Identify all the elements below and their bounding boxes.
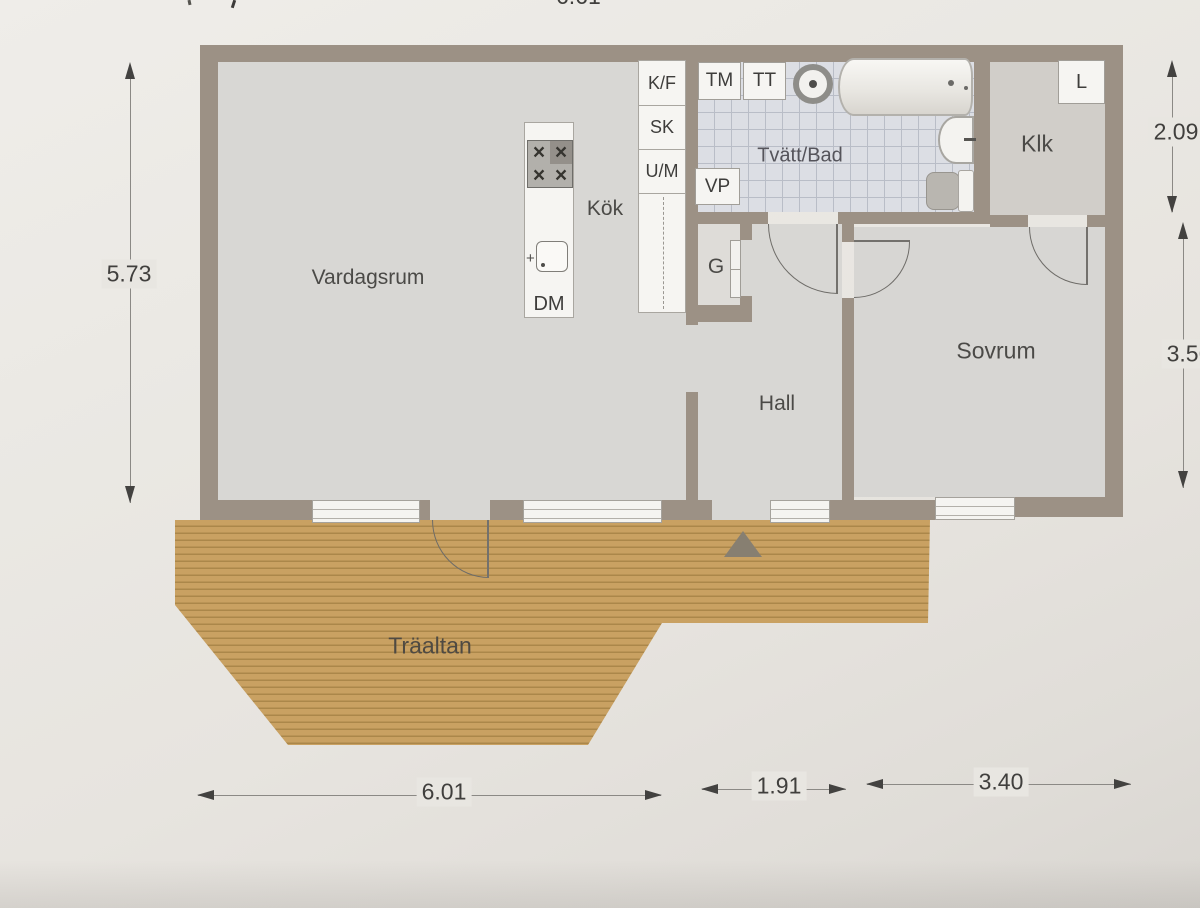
window-sovrum	[935, 497, 1015, 520]
burner-icon: ×	[550, 164, 572, 187]
dimension-label-right-lower: 3.56	[1162, 340, 1200, 369]
entrance-arrow-icon	[724, 531, 762, 557]
wall-bottom-seg3	[490, 500, 523, 520]
room-label-klk: Klk	[1021, 131, 1053, 158]
garderob-door	[730, 240, 741, 298]
wall-klk-bottom-left	[990, 215, 1028, 227]
kitchen-sink	[536, 241, 568, 272]
window-vardagsrum-2	[523, 500, 662, 523]
kitchen-tall-cabinets: K/F SK U/M	[638, 60, 686, 313]
dimension-top-text: 6.61	[556, 0, 601, 7]
toilet-seat	[926, 172, 960, 210]
dimension-label-bottom-right: 3.40	[974, 768, 1029, 797]
linen-closet: L	[1058, 60, 1105, 104]
entrance-opening	[712, 500, 770, 520]
sink-tap-icon: +	[526, 250, 535, 267]
room-label-vardagsrum: Vardagsrum	[312, 266, 425, 290]
wood-deck	[175, 520, 932, 748]
dimension-arrow-right	[829, 784, 846, 794]
wall-garderob-bottom	[686, 305, 752, 322]
dimension-label-left: 5.73	[102, 260, 157, 289]
window-hall	[770, 500, 830, 523]
room-label-hall: Hall	[759, 392, 795, 416]
bath-door-panel	[836, 224, 838, 294]
room-label-tvattbad: Tvätt/Bad	[757, 145, 843, 168]
wall-bottom-seg1	[200, 500, 312, 520]
hall-passage-floor	[686, 325, 698, 392]
room-label-garderob: G	[708, 255, 724, 279]
wall-hall-sovrum-stub	[842, 212, 854, 242]
sovrum-door-panel	[854, 240, 910, 242]
dryer-label: TT	[753, 70, 776, 92]
wall-hall-sovrum	[842, 298, 854, 500]
dimension-arrow-right	[1114, 779, 1131, 789]
dimension-arrow-down	[1178, 471, 1188, 488]
dimension-arrow-down	[1167, 196, 1177, 213]
oven-micro-label: U/M	[646, 161, 679, 182]
oven-micro-cell: U/M	[639, 150, 685, 194]
bathtub-tap-dot	[964, 86, 968, 90]
wall-klk-bottom-right	[1087, 215, 1105, 227]
kitchen-counter-strip: ×××× + DM	[524, 122, 574, 318]
room-label-traaltan: Träaltan	[388, 633, 472, 660]
stove: ××××	[527, 140, 573, 188]
washing-machine: TM	[698, 62, 741, 100]
sink-drain-dot	[541, 263, 545, 267]
wall-bottom-sovrum	[1013, 497, 1123, 517]
wall-right	[1105, 45, 1123, 517]
bathtub	[838, 58, 973, 116]
wall-bath-bottom-right	[838, 212, 990, 224]
wall-kitchen-hall-lower	[686, 392, 698, 500]
top-edge-mark	[231, 0, 236, 8]
dimension-arrow-left	[866, 779, 883, 789]
deck-door-panel	[487, 520, 489, 578]
washbasin-tap	[964, 138, 976, 141]
burner-icon: ×	[528, 164, 550, 187]
pantry-cell: SK	[639, 106, 685, 150]
wall-bottom-seg5	[828, 500, 935, 520]
dimension-label-bottom-middle: 1.91	[752, 772, 807, 801]
linen-closet-label: L	[1076, 71, 1087, 94]
dishwasher-label: DM	[533, 293, 564, 316]
window-vardagsrum-1	[312, 500, 420, 523]
burner-icon: ×	[528, 141, 550, 164]
room-label-sovrum: Sovrum	[956, 338, 1035, 365]
dimension-label-right-upper: 2.09	[1149, 118, 1200, 147]
floor-drain-center	[809, 80, 817, 88]
wall-bottom-seg4	[660, 500, 712, 520]
fridge-freezer-cell: K/F	[639, 61, 685, 106]
wall-left	[200, 45, 218, 520]
counter-dashed-edge	[663, 197, 665, 309]
wall-bath-bottom-left	[698, 212, 768, 224]
fridge-freezer-label: K/F	[648, 73, 676, 94]
toilet-tank	[958, 170, 974, 212]
room-label-kok: Kök	[587, 197, 623, 221]
dryer: TT	[743, 62, 786, 100]
klk-door-panel	[1086, 227, 1088, 285]
dimension-arrow-up	[1167, 60, 1177, 77]
wall-garderob-right-top	[740, 224, 752, 240]
dimension-arrow-up	[125, 62, 135, 79]
dimension-arrow-right	[645, 790, 662, 800]
heat-pump-label: VP	[705, 176, 730, 198]
dimension-label-bottom-left: 6.01	[417, 778, 472, 807]
washing-machine-label: TM	[706, 70, 733, 92]
dimension-label-top-cropped: 6.61	[548, 0, 628, 7]
floor-plan-photo: TM TT VP K/F SK U/M ×××× + DM L Vardagsr…	[0, 0, 1200, 908]
vardagsrum-floor	[218, 62, 686, 500]
dishwasher-label-wrap: DM	[525, 289, 573, 319]
pantry-label: SK	[650, 117, 674, 138]
burner-icon: ×	[550, 141, 572, 164]
wall-bath-klk	[974, 62, 990, 224]
floor-drain-icon	[793, 64, 833, 104]
dimension-arrow-left	[197, 790, 214, 800]
top-edge-mark	[188, 0, 192, 5]
dimension-arrow-left	[701, 784, 718, 794]
deck-door-opening	[430, 500, 490, 520]
dimension-arrow-up	[1178, 222, 1188, 239]
dimension-arrow-down	[125, 486, 135, 503]
heat-pump-unit: VP	[695, 168, 740, 205]
bathtub-drain-dot	[948, 80, 954, 86]
